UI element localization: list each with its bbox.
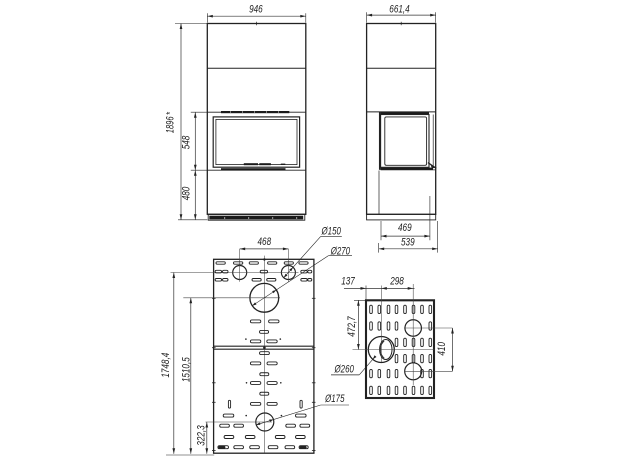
svg-text:469: 469 — [398, 222, 412, 234]
svg-text:548: 548 — [181, 135, 193, 149]
svg-text:410: 410 — [436, 341, 448, 355]
svg-text:322,3: 322,3 — [196, 425, 208, 446]
svg-text:1896 *: 1896 * — [165, 112, 177, 134]
svg-text:472,7: 472,7 — [346, 316, 358, 337]
svg-text:137: 137 — [341, 275, 355, 287]
svg-text:539: 539 — [401, 237, 415, 249]
svg-text:946: 946 — [249, 3, 263, 15]
svg-text:298: 298 — [389, 275, 404, 287]
svg-text:Ø150: Ø150 — [321, 226, 342, 238]
svg-text:1510,5: 1510,5 — [181, 357, 193, 383]
svg-text:661,4: 661,4 — [389, 3, 409, 15]
svg-text:468: 468 — [258, 236, 272, 248]
svg-text:480: 480 — [181, 186, 193, 200]
svg-text:Ø260: Ø260 — [334, 363, 355, 375]
svg-text:Ø175: Ø175 — [324, 393, 345, 405]
svg-text:1748,4: 1748,4 — [160, 353, 172, 378]
